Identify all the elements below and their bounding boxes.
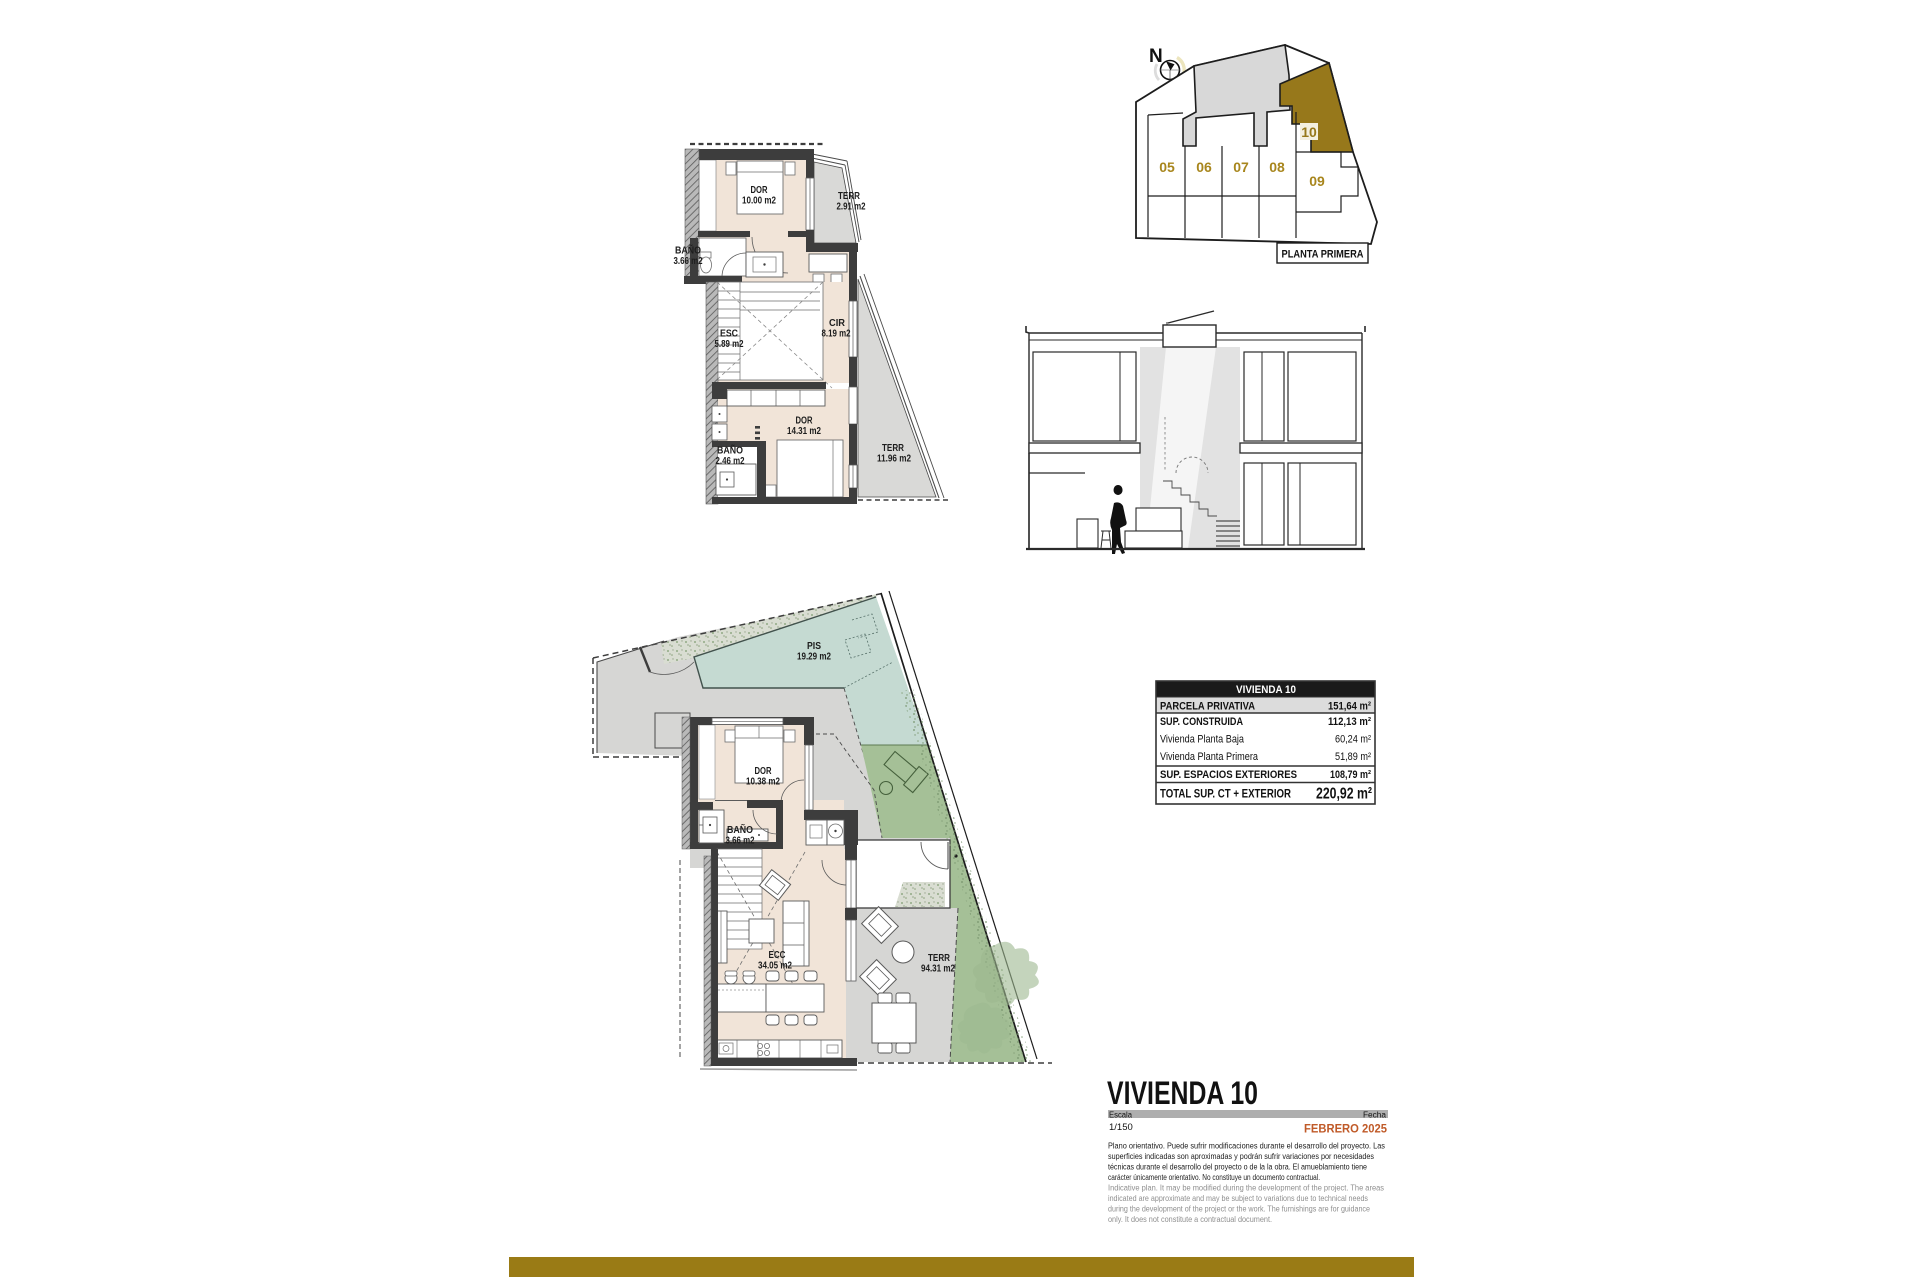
svg-text:TERR: TERR	[928, 953, 951, 964]
svg-text:Indicative plan. It may be mod: Indicative plan. It may be modified duri…	[1108, 1184, 1384, 1193]
svg-text:BAÑO: BAÑO	[727, 823, 753, 836]
svg-text:08: 08	[1269, 159, 1285, 175]
svg-text:VIVIENDA 10: VIVIENDA 10	[1236, 684, 1296, 696]
svg-text:DOR: DOR	[755, 766, 773, 777]
svg-text:BAÑO: BAÑO	[717, 444, 743, 457]
svg-text:Fecha: Fecha	[1363, 1110, 1387, 1119]
svg-text:PLANTA PRIMERA: PLANTA PRIMERA	[1282, 249, 1364, 261]
svg-text:94.31 m2: 94.31 m2	[921, 964, 955, 975]
svg-text:09: 09	[1309, 173, 1325, 189]
svg-text:2.91 m2: 2.91 m2	[837, 202, 866, 213]
svg-text:ECC: ECC	[769, 950, 786, 961]
svg-text:3.66 m2: 3.66 m2	[726, 836, 755, 847]
svg-text:112,13 m²: 112,13 m²	[1328, 716, 1371, 728]
svg-text:220,92 m²: 220,92 m²	[1316, 786, 1372, 803]
svg-text:Vivienda Planta Primera: Vivienda Planta Primera	[1160, 751, 1259, 763]
svg-text:151,64 m²: 151,64 m²	[1328, 701, 1371, 713]
svg-text:ESC: ESC	[720, 329, 738, 340]
svg-text:superficies indicadas son apro: superficies indicadas son aproximadas y …	[1108, 1152, 1374, 1161]
svg-text:SUP. CONSTRUIDA: SUP. CONSTRUIDA	[1160, 716, 1243, 728]
svg-text:14.31 m2: 14.31 m2	[787, 426, 821, 437]
svg-text:11.96 m2: 11.96 m2	[877, 454, 911, 465]
svg-text:07: 07	[1233, 159, 1249, 175]
svg-text:indicated are approximate and: indicated are approximate and may be sub…	[1108, 1194, 1368, 1203]
svg-text:5.89 m2: 5.89 m2	[715, 339, 744, 350]
svg-text:Vivienda Planta Baja: Vivienda Planta Baja	[1160, 734, 1245, 746]
svg-text:10.00 m2: 10.00 m2	[742, 196, 776, 207]
svg-text:TERR: TERR	[882, 443, 905, 454]
svg-text:06: 06	[1196, 159, 1212, 175]
svg-text:Plano orientativo. Puede sufri: Plano orientativo. Puede sufrir modifica…	[1108, 1142, 1385, 1151]
svg-text:CIR: CIR	[829, 318, 846, 329]
svg-text:Escala: Escala	[1109, 1110, 1133, 1119]
svg-text:51,89 m²: 51,89 m²	[1335, 751, 1371, 763]
svg-text:only. It does not constitute a: only. It does not constitute a contractu…	[1108, 1215, 1272, 1224]
svg-text:108,79 m²: 108,79 m²	[1330, 769, 1371, 781]
svg-text:34.05 m2: 34.05 m2	[758, 961, 792, 972]
svg-text:DOR: DOR	[751, 185, 769, 196]
svg-text:3.66 m2: 3.66 m2	[674, 256, 703, 267]
svg-text:TOTAL SUP. CT + EXTERIOR: TOTAL SUP. CT + EXTERIOR	[1160, 787, 1291, 801]
svg-text:05: 05	[1159, 159, 1175, 175]
svg-text:técnicas durante el desarrollo: técnicas durante el desarrollo del proye…	[1108, 1163, 1367, 1172]
svg-text:10.38 m2: 10.38 m2	[746, 777, 780, 788]
svg-text:2.46 m2: 2.46 m2	[716, 456, 745, 467]
svg-text:FEBRERO 2025: FEBRERO 2025	[1304, 1124, 1388, 1136]
svg-text:carácter únicamente orientativ: carácter únicamente orientativo. No cons…	[1108, 1173, 1320, 1182]
svg-text:1/150: 1/150	[1109, 1122, 1133, 1133]
svg-text:8.19 m2: 8.19 m2	[822, 329, 851, 340]
svg-text:during the development of the: during the development of the project or…	[1108, 1205, 1370, 1214]
svg-text:SUP. ESPACIOS EXTERIORES: SUP. ESPACIOS EXTERIORES	[1160, 769, 1297, 781]
svg-text:PARCELA PRIVATIVA: PARCELA PRIVATIVA	[1160, 701, 1255, 713]
svg-text:DOR: DOR	[796, 416, 814, 427]
svg-text:TERR: TERR	[838, 191, 861, 202]
svg-text:PIS: PIS	[807, 641, 821, 652]
svg-text:VIVIENDA 10: VIVIENDA 10	[1107, 1075, 1258, 1111]
svg-text:10: 10	[1301, 124, 1317, 140]
svg-text:60,24 m²: 60,24 m²	[1335, 734, 1371, 746]
svg-text:BAÑO: BAÑO	[675, 244, 701, 257]
svg-text:19.29 m2: 19.29 m2	[797, 652, 831, 663]
